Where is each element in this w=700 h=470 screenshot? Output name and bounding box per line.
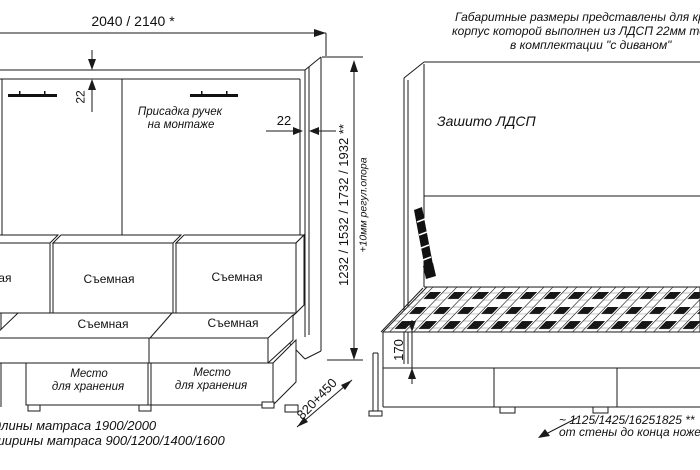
door-handle-right <box>190 91 238 97</box>
dim-width-label: 2040 / 2140 * <box>91 14 174 29</box>
dim-height-label: 1232 / 1532 / 1732 / 1932 ** <box>337 124 351 286</box>
footnote-line2: ширины матраса 900/1200/1400/1600 <box>0 434 225 448</box>
drawer-right-label-line1: Место <box>193 367 230 379</box>
note-handles-line2: на монтаже <box>148 119 215 131</box>
footnote-line1: длины матраса 1900/2000 <box>0 419 156 433</box>
back-cushion-right-label: Съемная <box>212 271 263 284</box>
seat-cushion-left-label: Съемная <box>78 318 129 331</box>
lift-mechanism <box>414 207 436 279</box>
bed-slats <box>383 287 700 332</box>
back-cushion-left-label: Съемная <box>0 272 11 285</box>
note-handles-line1: Присадка ручек <box>138 106 222 118</box>
note-material-line1: Габаритные размеры представлены для кров <box>455 11 700 24</box>
note-material-line2: корпус которой выполнен из ЛДСП 22мм тол… <box>452 25 700 38</box>
seat-cushion-right-label: Съемная <box>208 317 259 330</box>
door-handle-left <box>8 91 57 97</box>
dim-top-thickness-label: 22 <box>75 90 88 103</box>
dim-side-thickness-label: 22 <box>277 114 291 128</box>
panel-label: Зашито ЛДСП <box>437 114 536 129</box>
right-drawing-dimensions <box>408 320 577 438</box>
back-cushion-middle-label: Съемная <box>84 273 135 286</box>
drawer-left-label-line2: для хранения <box>52 381 124 393</box>
note-material-line3: в комплектации "с диваном" <box>510 39 671 52</box>
drawer-left-label-line1: Место <box>70 368 107 380</box>
technical-drawing-page: 2040 / 2140 * Габаритные размеры предста… <box>0 0 700 470</box>
dim-height-note-label: +10мм регул.опора <box>358 157 369 252</box>
drawer-right-label-line2: для хранения <box>175 380 247 392</box>
floor-note-line2: от стены до конца ножек <box>559 426 700 439</box>
dim-base-height-label: 170 <box>392 339 406 361</box>
